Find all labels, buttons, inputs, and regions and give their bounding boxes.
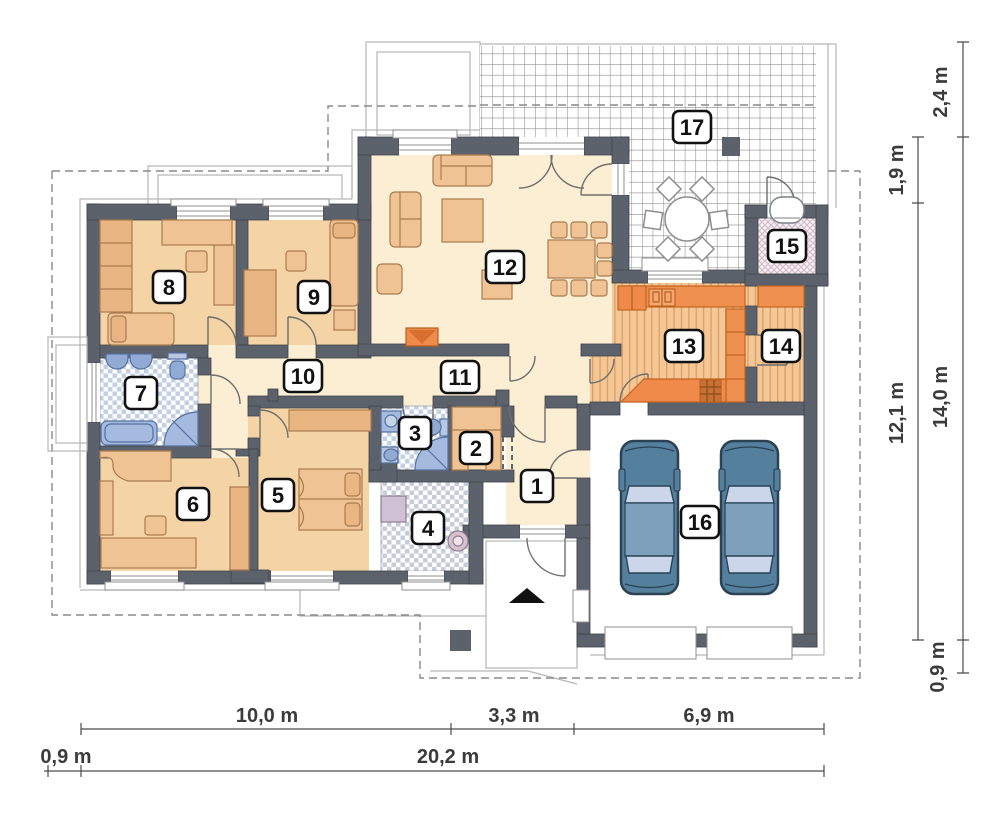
- svg-text:20,2 m: 20,2 m: [417, 746, 479, 768]
- svg-text:9: 9: [308, 285, 320, 310]
- svg-text:6: 6: [187, 492, 199, 517]
- svg-text:13: 13: [672, 334, 696, 359]
- svg-text:16: 16: [688, 510, 712, 535]
- svg-text:4: 4: [422, 516, 435, 541]
- svg-text:11: 11: [448, 365, 471, 390]
- svg-text:15: 15: [775, 234, 799, 259]
- svg-text:5: 5: [272, 483, 284, 508]
- svg-text:3,3 m: 3,3 m: [488, 705, 539, 727]
- svg-text:6,9 m: 6,9 m: [683, 705, 734, 727]
- svg-text:2: 2: [470, 436, 482, 461]
- svg-text:2,4 m: 2,4 m: [930, 66, 952, 117]
- svg-text:0,9 m: 0,9 m: [40, 746, 91, 768]
- svg-text:8: 8: [163, 275, 175, 300]
- svg-text:10: 10: [291, 364, 315, 389]
- svg-text:12,1 m: 12,1 m: [886, 382, 908, 444]
- svg-text:0,9 m: 0,9 m: [927, 641, 949, 692]
- svg-text:14,0 m: 14,0 m: [930, 366, 952, 428]
- svg-text:1,9 m: 1,9 m: [886, 144, 908, 195]
- svg-text:12: 12: [493, 255, 517, 280]
- svg-text:14: 14: [769, 334, 794, 359]
- svg-text:1: 1: [531, 474, 543, 499]
- svg-text:7: 7: [135, 381, 147, 406]
- svg-text:3: 3: [409, 421, 421, 446]
- svg-text:17: 17: [680, 115, 704, 140]
- svg-text:10,0 m: 10,0 m: [236, 705, 298, 727]
